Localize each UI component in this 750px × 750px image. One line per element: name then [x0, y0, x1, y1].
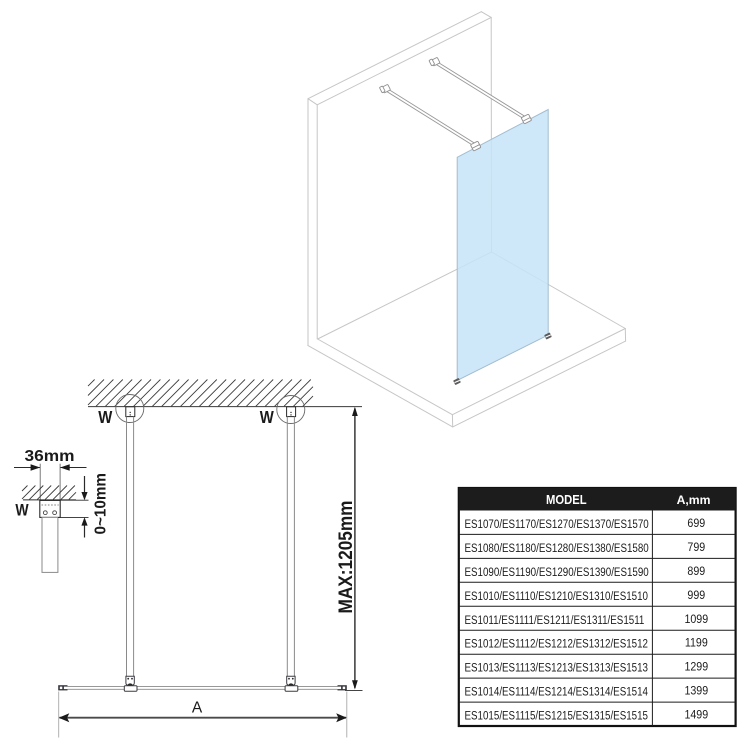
svg-text:ES1014/ES1114/ES1214/ES1314/ES: ES1014/ES1114/ES1214/ES1314/ES1514 — [465, 686, 649, 699]
svg-text:W: W — [98, 408, 113, 427]
svg-text:799: 799 — [687, 541, 705, 554]
svg-text:A: A — [192, 699, 203, 716]
svg-text:ES1080/ES1180/ES1280/ES1380/ES: ES1080/ES1180/ES1280/ES1380/ES1580 — [465, 542, 649, 555]
svg-text:899: 899 — [687, 565, 705, 578]
svg-text:1399: 1399 — [684, 685, 708, 698]
svg-text:1199: 1199 — [685, 637, 708, 650]
svg-text:36mm: 36mm — [25, 448, 75, 465]
svg-text:W: W — [260, 408, 275, 427]
svg-text:ES1011/ES1111/ES1211/ES1311/ES: ES1011/ES1111/ES1211/ES1311/ES1511 — [465, 614, 645, 627]
svg-text:MAX:1205mm: MAX:1205mm — [335, 501, 357, 614]
svg-text:MODEL: MODEL — [546, 492, 587, 507]
svg-text:999: 999 — [687, 589, 705, 602]
svg-text:ES1010/ES1110/ES1210/ES1310/ES: ES1010/ES1110/ES1210/ES1310/ES1510 — [465, 590, 649, 603]
svg-text:ES1013/ES1113/ES1213/ES1313/ES: ES1013/ES1113/ES1213/ES1313/ES1513 — [465, 662, 649, 675]
svg-text:1499: 1499 — [684, 709, 708, 722]
svg-text:ES1070/ES1170/ES1270/ES1370/ES: ES1070/ES1170/ES1270/ES1370/ES1570 — [465, 518, 649, 531]
svg-text:0~10mm: 0~10mm — [92, 473, 109, 535]
svg-text:699: 699 — [687, 517, 705, 530]
svg-text:1099: 1099 — [684, 613, 708, 626]
svg-text:ES1090/ES1190/ES1290/ES1390/ES: ES1090/ES1190/ES1290/ES1390/ES1590 — [465, 566, 649, 579]
svg-text:ES1015/ES1115/ES1215/ES1315/ES: ES1015/ES1115/ES1215/ES1315/ES1515 — [465, 710, 649, 723]
svg-text:1299: 1299 — [684, 661, 708, 674]
svg-text:A,mm: A,mm — [677, 493, 711, 507]
svg-text:ES1012/ES1112/ES1212/ES1312/ES: ES1012/ES1112/ES1212/ES1312/ES1512 — [465, 638, 649, 651]
svg-text:W: W — [15, 501, 29, 519]
